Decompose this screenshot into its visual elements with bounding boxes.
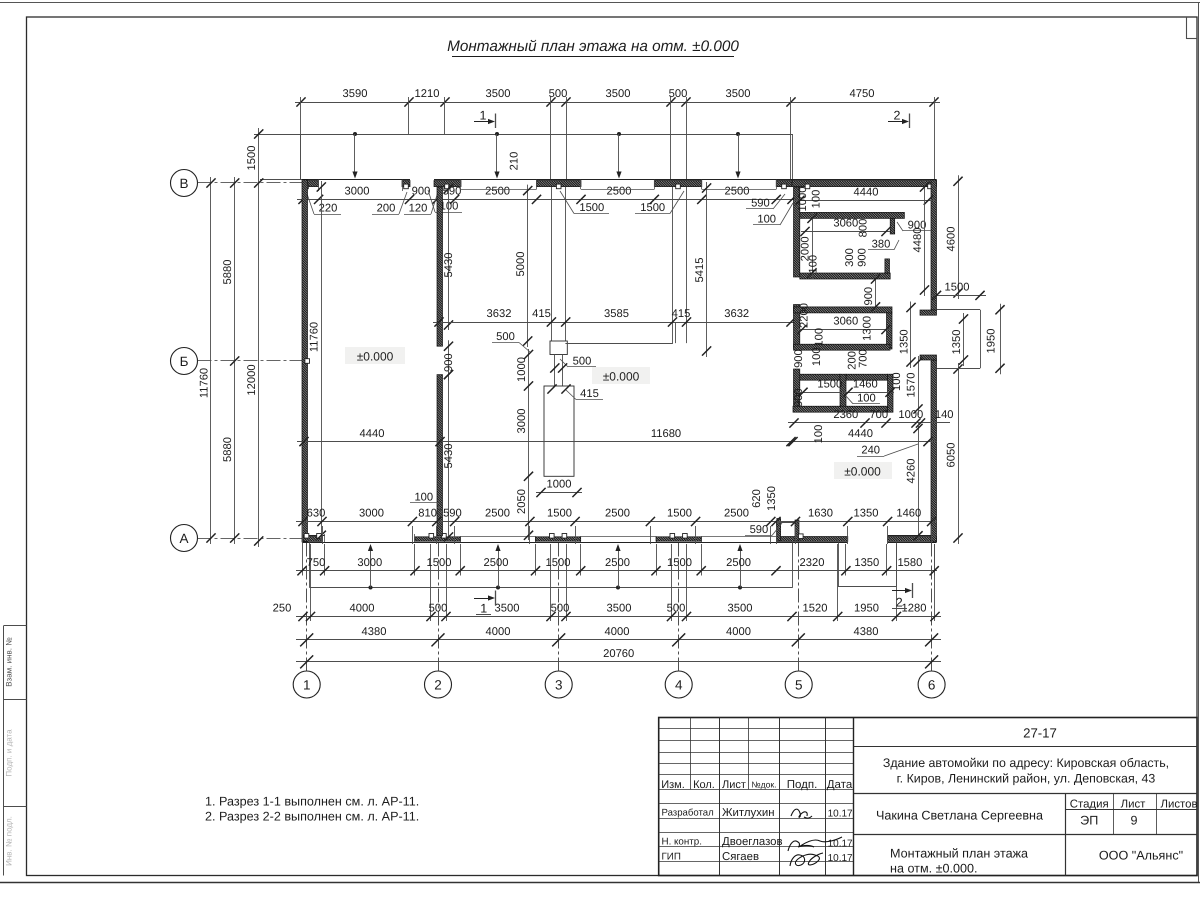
svg-text:1350: 1350	[854, 557, 879, 569]
svg-text:3585: 3585	[604, 308, 629, 320]
svg-text:4750: 4750	[850, 88, 875, 100]
svg-text:1210: 1210	[415, 88, 440, 100]
svg-text:590: 590	[443, 508, 462, 520]
svg-text:27-17: 27-17	[1023, 726, 1057, 741]
svg-text:6050: 6050	[945, 443, 957, 468]
svg-text:Взам. инв. №: Взам. инв. №	[5, 637, 14, 687]
svg-text:500: 500	[667, 603, 686, 615]
svg-text:900: 900	[793, 349, 805, 368]
svg-text:140: 140	[935, 409, 954, 421]
svg-text:1950: 1950	[854, 603, 879, 615]
svg-text:Подп. и дата: Подп. и дата	[5, 729, 14, 777]
svg-text:Двоеглазов: Двоеглазов	[722, 836, 783, 848]
svg-text:590: 590	[750, 524, 769, 536]
svg-text:5430: 5430	[443, 253, 455, 278]
svg-text:1580: 1580	[897, 557, 922, 569]
svg-text:1000: 1000	[516, 357, 528, 382]
svg-text:100: 100	[891, 372, 903, 391]
svg-text:4380: 4380	[854, 626, 879, 638]
svg-text:4600: 4600	[945, 227, 957, 252]
svg-text:Дата: Дата	[827, 779, 853, 791]
svg-text:1500: 1500	[546, 557, 571, 569]
svg-text:2200: 2200	[799, 303, 811, 328]
svg-text:2: 2	[894, 109, 901, 123]
svg-text:415: 415	[672, 308, 691, 320]
svg-text:2050: 2050	[516, 489, 528, 514]
svg-text:4000: 4000	[605, 626, 630, 638]
svg-text:100: 100	[414, 492, 433, 504]
svg-text:500: 500	[573, 356, 592, 368]
svg-text:4380: 4380	[362, 626, 387, 638]
svg-text:10.17: 10.17	[828, 839, 853, 850]
svg-text:100: 100	[813, 425, 825, 444]
svg-text:750: 750	[307, 557, 326, 569]
svg-text:1350: 1350	[898, 329, 910, 354]
svg-text:г. Киров, Ленинский район, ул.: г. Киров, Ленинский район, ул. Деповская…	[897, 772, 1156, 786]
svg-text:240: 240	[861, 445, 880, 457]
svg-text:2500: 2500	[605, 508, 630, 520]
svg-text:2500: 2500	[607, 186, 632, 198]
svg-text:380: 380	[872, 238, 891, 250]
svg-text:1000: 1000	[547, 479, 572, 491]
svg-text:700: 700	[857, 349, 869, 368]
svg-text:3500: 3500	[606, 88, 631, 100]
svg-text:ООО "Альянс": ООО "Альянс"	[1099, 849, 1183, 863]
svg-text:Разработал: Разработал	[662, 808, 714, 819]
svg-text:5430: 5430	[443, 444, 455, 469]
svg-text:6: 6	[928, 677, 936, 692]
svg-text:1950: 1950	[986, 329, 998, 354]
svg-text:3060: 3060	[833, 316, 858, 328]
svg-text:3500: 3500	[728, 603, 753, 615]
svg-text:1630: 1630	[808, 508, 833, 520]
svg-text:700: 700	[869, 409, 888, 421]
svg-text:2500: 2500	[724, 508, 749, 520]
svg-text:10.17: 10.17	[828, 853, 853, 864]
svg-text:900: 900	[443, 353, 455, 372]
svg-text:Инв. № подл.: Инв. № подл.	[5, 816, 14, 866]
svg-text:±0.000: ±0.000	[844, 465, 881, 479]
svg-text:3632: 3632	[724, 308, 749, 320]
svg-text:590: 590	[751, 198, 770, 210]
svg-text:810: 810	[418, 508, 437, 520]
svg-text:Лист: Лист	[722, 779, 746, 791]
svg-text:1: 1	[303, 677, 311, 692]
svg-text:ЭП: ЭП	[1080, 814, 1098, 828]
svg-text:3632: 3632	[487, 308, 512, 320]
svg-text:900: 900	[856, 248, 868, 267]
svg-text:4440: 4440	[854, 186, 879, 198]
svg-text:2: 2	[896, 596, 903, 610]
svg-text:№док.: №док.	[751, 780, 776, 790]
svg-text:3500: 3500	[495, 603, 520, 615]
svg-text:1000: 1000	[797, 187, 809, 212]
svg-text:100: 100	[811, 347, 823, 366]
svg-text:2320: 2320	[800, 557, 825, 569]
svg-text:11760: 11760	[198, 368, 210, 398]
svg-text:500: 500	[551, 603, 570, 615]
svg-text:4440: 4440	[848, 428, 873, 440]
svg-text:1500: 1500	[945, 282, 970, 294]
svg-text:Чакина Светлана Сергеевна: Чакина Светлана Сергеевна	[876, 809, 1043, 823]
svg-text:Здание автомойки по адресу: Ки: Здание автомойки по адресу: Кировская об…	[883, 756, 1169, 770]
svg-text:1500: 1500	[817, 379, 842, 391]
svg-text:900: 900	[863, 287, 875, 306]
svg-text:4000: 4000	[350, 603, 375, 615]
svg-text:3060: 3060	[833, 218, 858, 230]
svg-text:1300: 1300	[862, 316, 874, 341]
svg-text:2500: 2500	[484, 557, 509, 569]
svg-text:2500: 2500	[485, 186, 510, 198]
svg-text:2. Разрез 2-2 выполнен см. л.: 2. Разрез 2-2 выполнен см. л. АР-11.	[205, 810, 419, 824]
svg-text:5415: 5415	[694, 258, 706, 283]
svg-text:200: 200	[377, 203, 396, 215]
svg-text:1500: 1500	[246, 146, 258, 171]
svg-text:4000: 4000	[726, 626, 751, 638]
svg-text:500: 500	[429, 603, 448, 615]
svg-text:415: 415	[532, 308, 551, 320]
svg-text:4440: 4440	[360, 428, 385, 440]
svg-text:3000: 3000	[359, 508, 384, 520]
svg-text:1460: 1460	[853, 379, 878, 391]
svg-text:Монтажный план этажа на отм. ±: Монтажный план этажа на отм. ±0.000	[447, 38, 739, 55]
svg-text:1000: 1000	[898, 409, 923, 421]
svg-text:2500: 2500	[485, 508, 510, 520]
svg-text:4260: 4260	[905, 459, 917, 484]
svg-text:1500: 1500	[579, 202, 604, 214]
svg-text:300: 300	[844, 248, 856, 267]
svg-text:250: 250	[273, 603, 292, 615]
svg-text:1500: 1500	[640, 202, 665, 214]
svg-text:±0.000: ±0.000	[603, 370, 640, 384]
svg-text:11680: 11680	[651, 428, 681, 440]
svg-text:4000: 4000	[486, 626, 511, 638]
svg-text:В: В	[179, 176, 188, 191]
svg-text:ГИП: ГИП	[662, 852, 681, 863]
svg-text:Изм.: Изм.	[661, 779, 685, 791]
svg-text:1500: 1500	[547, 508, 572, 520]
svg-text:620: 620	[751, 489, 763, 508]
svg-text:3000: 3000	[345, 186, 370, 198]
svg-text:210: 210	[509, 152, 521, 171]
svg-text:100: 100	[807, 255, 819, 274]
svg-text:500: 500	[496, 331, 515, 343]
svg-text:3500: 3500	[486, 88, 511, 100]
svg-text:Житлухин: Житлухин	[722, 807, 775, 819]
svg-text:11760: 11760	[309, 322, 321, 352]
svg-text:900: 900	[412, 186, 431, 198]
svg-text:100: 100	[757, 214, 776, 226]
svg-text:630: 630	[307, 508, 326, 520]
svg-text:4: 4	[675, 677, 683, 692]
svg-text:1: 1	[480, 602, 487, 616]
svg-text:1350: 1350	[766, 486, 778, 511]
svg-text:20760: 20760	[603, 648, 634, 660]
svg-text:12000: 12000	[246, 364, 258, 395]
svg-text:5000: 5000	[515, 252, 527, 277]
svg-text:100: 100	[857, 392, 876, 404]
svg-text:2500: 2500	[726, 557, 751, 569]
svg-text:на отм. ±0.000.: на отм. ±0.000.	[890, 862, 978, 876]
svg-text:А: А	[179, 531, 188, 546]
svg-text:100: 100	[811, 190, 823, 209]
svg-text:1350: 1350	[951, 330, 963, 355]
svg-text:Листов: Листов	[1160, 799, 1197, 811]
svg-text:Подп.: Подп.	[787, 779, 818, 791]
svg-text:3590: 3590	[343, 88, 368, 100]
svg-text:3000: 3000	[516, 409, 528, 434]
svg-text:500: 500	[669, 88, 688, 100]
svg-text:1570: 1570	[905, 373, 917, 398]
svg-text:415: 415	[580, 388, 599, 400]
svg-text:5: 5	[795, 677, 803, 692]
svg-text:±0.000: ±0.000	[357, 350, 394, 364]
svg-text:Б: Б	[180, 354, 189, 369]
svg-text:3000: 3000	[357, 557, 382, 569]
svg-text:3500: 3500	[607, 603, 632, 615]
svg-text:1500: 1500	[667, 508, 692, 520]
svg-text:Н. контр.: Н. контр.	[662, 837, 702, 848]
svg-text:120: 120	[409, 203, 428, 215]
svg-text:5880: 5880	[222, 437, 234, 462]
svg-text:500: 500	[549, 88, 568, 100]
svg-text:2500: 2500	[605, 557, 630, 569]
svg-text:Кол.: Кол.	[693, 779, 715, 791]
svg-text:10.17: 10.17	[828, 809, 853, 820]
svg-text:2500: 2500	[725, 186, 750, 198]
svg-text:3500: 3500	[726, 88, 751, 100]
svg-text:800: 800	[857, 219, 869, 238]
svg-text:1. Разрез 1-1 выполнен см. л.: 1. Разрез 1-1 выполнен см. л. АР-11.	[205, 795, 419, 809]
svg-text:5880: 5880	[222, 260, 234, 285]
svg-text:Монтажный план этажа: Монтажный план этажа	[890, 847, 1028, 861]
svg-text:1500: 1500	[427, 557, 452, 569]
svg-text:2360: 2360	[833, 409, 858, 421]
svg-text:9: 9	[1130, 814, 1137, 828]
svg-text:1460: 1460	[896, 508, 921, 520]
svg-text:4480: 4480	[912, 228, 924, 253]
svg-text:Лист: Лист	[1121, 799, 1147, 811]
svg-text:1520: 1520	[803, 603, 828, 615]
svg-text:Сягаев: Сягаев	[722, 851, 759, 863]
svg-text:2: 2	[434, 677, 442, 692]
svg-text:Стадия: Стадия	[1070, 799, 1109, 811]
svg-text:3: 3	[555, 677, 563, 692]
svg-text:1500: 1500	[667, 557, 692, 569]
svg-text:1: 1	[480, 109, 487, 123]
svg-text:1350: 1350	[854, 508, 879, 520]
svg-text:100: 100	[814, 328, 826, 347]
